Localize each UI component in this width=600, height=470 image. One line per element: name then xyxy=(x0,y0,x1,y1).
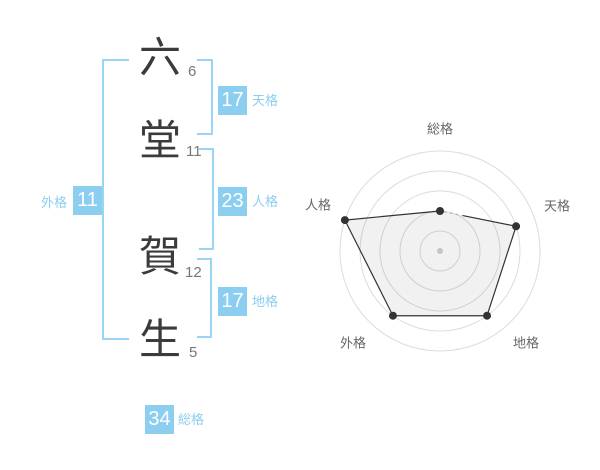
axis-label-1: 天格 xyxy=(544,199,570,214)
stroke-count-1: 6 xyxy=(188,64,196,79)
axis-label-3: 外格 xyxy=(340,336,366,351)
name-char-2: 堂 xyxy=(136,119,184,163)
gaikaku-value-badge: 11 xyxy=(73,186,102,215)
radar-center-dot xyxy=(437,248,443,254)
radar-point-1 xyxy=(512,222,520,230)
name-analysis-panel: 六 堂 賀 生 6 11 12 5 17 23 17 11 34 天格 人格 地… xyxy=(0,0,600,470)
axis-label-2: 地格 xyxy=(513,336,539,351)
chikaku-value-badge: 17 xyxy=(218,287,247,316)
soukaku-value-badge: 34 xyxy=(145,405,174,434)
radar-chart: 総格天格地格外格人格 xyxy=(295,108,590,368)
radar-point-4 xyxy=(341,216,349,224)
name-char-1: 六 xyxy=(136,36,184,80)
soukaku-label: 総格 xyxy=(178,413,204,427)
radar-chart-svg: 総格天格地格外格人格 xyxy=(295,108,590,368)
stroke-count-4: 5 xyxy=(189,345,197,360)
tenkaku-label: 天格 xyxy=(252,94,278,108)
axis-label-0: 総格 xyxy=(427,122,453,137)
name-char-3: 賀 xyxy=(136,235,184,279)
radar-point-3 xyxy=(389,312,397,320)
stroke-count-3: 12 xyxy=(185,265,202,280)
name-char-4: 生 xyxy=(136,318,184,362)
radar-point-2 xyxy=(483,312,491,320)
radar-area xyxy=(345,211,516,316)
jinkaku-bracket xyxy=(199,148,214,250)
tenkaku-value-badge: 17 xyxy=(218,86,247,115)
gaikaku-bracket xyxy=(102,59,129,340)
axis-label-4: 人格 xyxy=(305,198,331,213)
stroke-count-2: 11 xyxy=(186,144,202,159)
gaikaku-label: 外格 xyxy=(41,196,67,210)
radar-point-0 xyxy=(436,207,444,215)
jinkaku-label: 人格 xyxy=(252,195,278,209)
chikaku-label: 地格 xyxy=(252,295,278,309)
jinkaku-value-badge: 23 xyxy=(218,187,247,216)
tenkaku-bracket xyxy=(197,59,213,135)
